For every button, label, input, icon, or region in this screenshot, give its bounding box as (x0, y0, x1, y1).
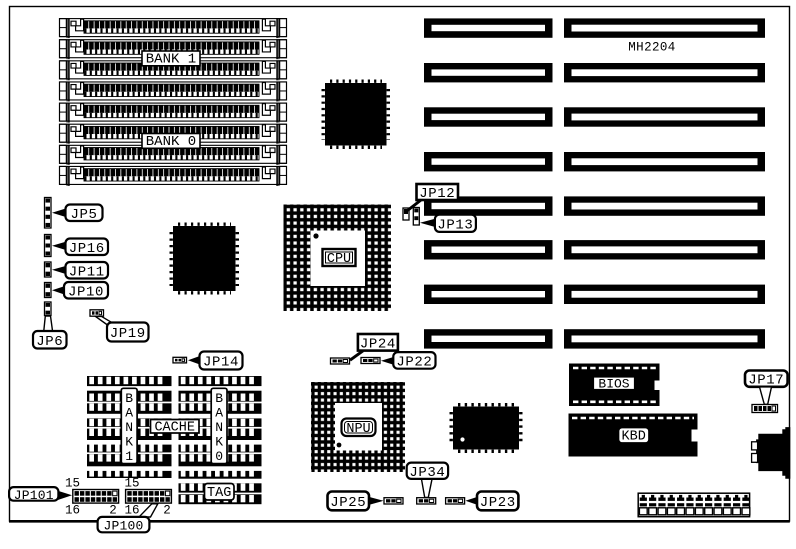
svg-text:JP13: JP13 (437, 217, 473, 233)
svg-text:JP16: JP16 (69, 241, 105, 257)
svg-text:BANK 1: BANK 1 (146, 52, 196, 68)
svg-text:JP100: JP100 (103, 519, 143, 534)
svg-text:JP10: JP10 (68, 284, 104, 300)
svg-text:N: N (125, 420, 133, 435)
svg-text:JP24: JP24 (360, 336, 396, 352)
svg-text:A: A (215, 405, 223, 420)
svg-text:1: 1 (125, 449, 133, 464)
svg-text:A: A (125, 405, 133, 420)
svg-text:JP25: JP25 (330, 495, 366, 511)
svg-text:B: B (215, 391, 223, 406)
svg-text:JP19: JP19 (110, 326, 146, 342)
svg-text:JP22: JP22 (396, 354, 432, 370)
svg-text:N: N (215, 420, 223, 435)
svg-text:CACHE: CACHE (154, 421, 195, 436)
svg-text:K: K (215, 435, 223, 450)
svg-text:JP23: JP23 (480, 495, 516, 511)
svg-text:JP6: JP6 (36, 334, 63, 350)
svg-text:16: 16 (65, 504, 80, 518)
svg-text:TAG: TAG (207, 486, 231, 501)
svg-text:KBD: KBD (622, 430, 646, 445)
svg-text:JP101: JP101 (14, 488, 54, 503)
svg-text:16: 16 (124, 504, 139, 518)
svg-text:NPU: NPU (346, 422, 370, 437)
svg-text:15: 15 (65, 477, 80, 491)
svg-text:JP14: JP14 (203, 355, 239, 371)
svg-text:JP11: JP11 (69, 264, 105, 280)
svg-text:JP5: JP5 (70, 207, 97, 223)
svg-text:BIOS: BIOS (598, 376, 629, 391)
svg-text:BANK 0: BANK 0 (146, 134, 196, 150)
svg-text:JP34: JP34 (409, 465, 445, 481)
svg-text:CPU: CPU (327, 252, 351, 267)
svg-text:K: K (125, 435, 133, 450)
svg-text:JP12: JP12 (419, 186, 455, 202)
svg-text:0: 0 (215, 449, 223, 464)
svg-text:MH2204: MH2204 (628, 41, 675, 55)
svg-text:2: 2 (109, 504, 117, 518)
svg-text:2: 2 (163, 504, 171, 518)
svg-text:15: 15 (124, 477, 139, 491)
svg-text:B: B (125, 391, 133, 406)
